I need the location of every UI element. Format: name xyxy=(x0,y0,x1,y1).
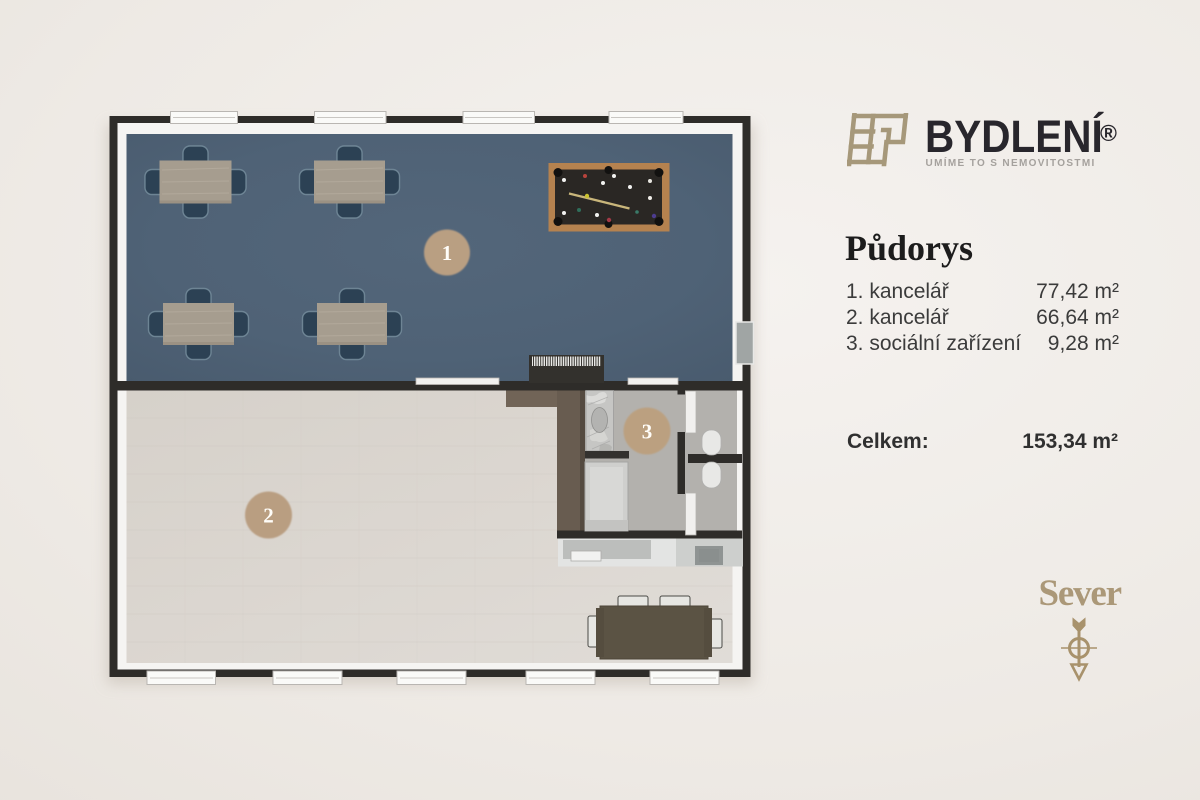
svg-text:1: 1 xyxy=(442,241,453,265)
svg-text:2: 2 xyxy=(263,504,274,528)
svg-text:3: 3 xyxy=(642,420,653,444)
